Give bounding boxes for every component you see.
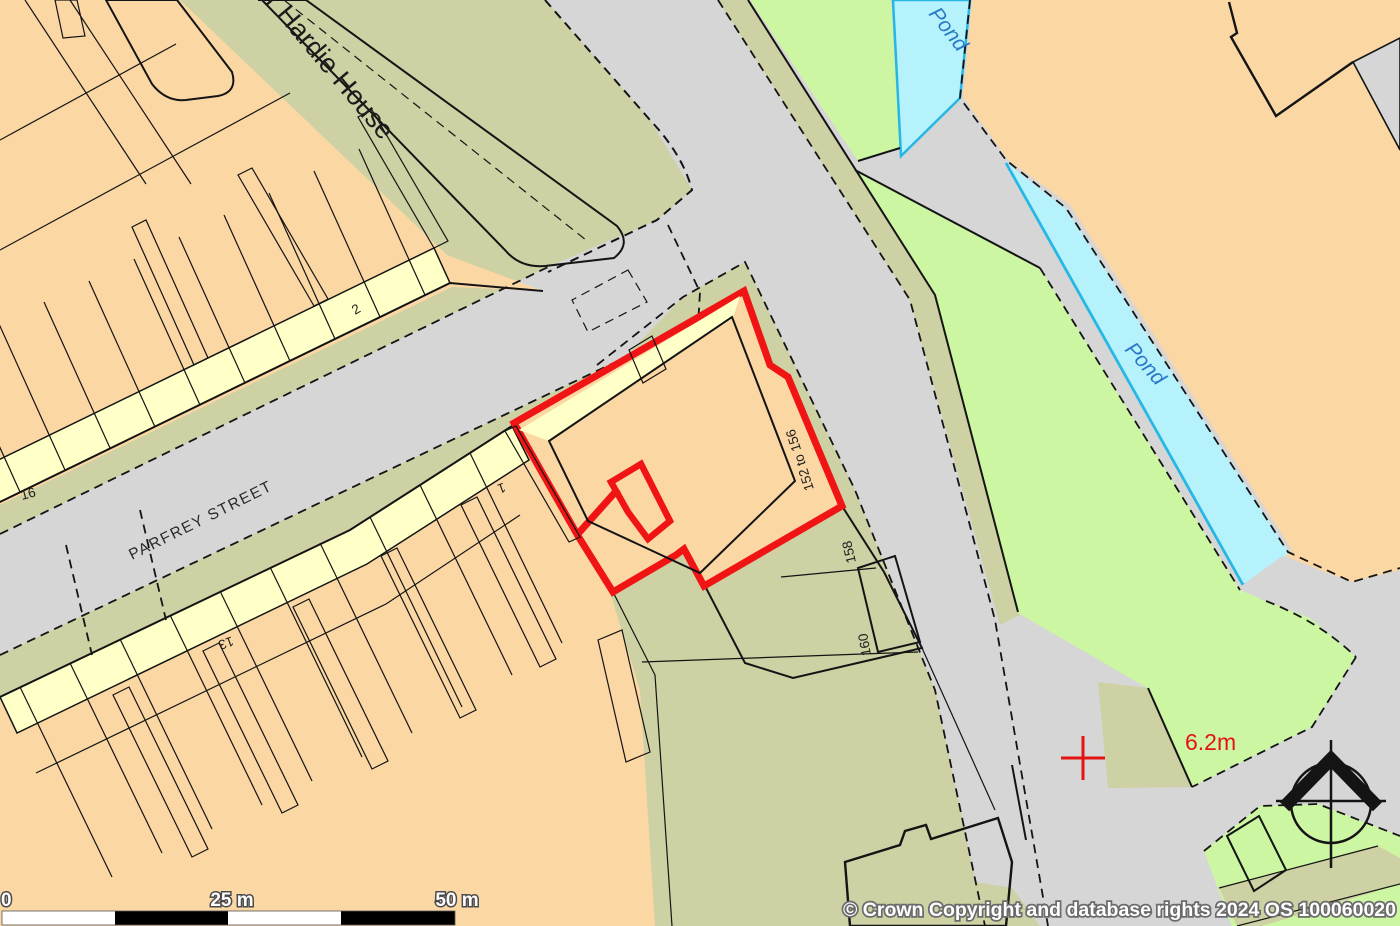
scale-end: 50 m [435, 890, 478, 911]
scale-zero: 0 [1, 890, 12, 911]
spot-height-label: 6.2m [1185, 729, 1236, 755]
map-canvas[interactable]: r Hardie House PARFREY STREET 152 to 156… [0, 0, 1400, 926]
copyright-notice: © Crown Copyright and database rights 20… [843, 899, 1396, 921]
scale-mid: 25 m [210, 890, 253, 911]
os-map-view: r Hardie House PARFREY STREET 152 to 156… [0, 0, 1400, 926]
